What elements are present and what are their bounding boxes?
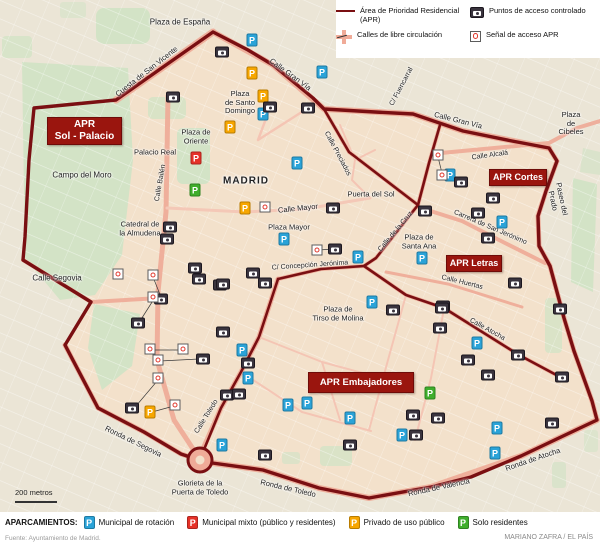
apr-signal-icon	[178, 344, 189, 355]
map-label: Plaza de Santa Ana	[402, 233, 437, 250]
apr-signal-icon	[148, 292, 159, 303]
parking-icon-blue: P	[367, 296, 378, 309]
camera-icon	[258, 278, 272, 289]
parking-icon-red: P	[187, 516, 198, 529]
parking-icon-orange: P	[225, 121, 236, 134]
camera-icon	[511, 350, 525, 361]
map-label: Campo del Moro	[52, 170, 111, 179]
parking-legend-label: Solo residentes	[473, 518, 528, 527]
camera-icon	[215, 47, 229, 58]
parking-icon-red: P	[191, 152, 202, 165]
legend-signal: Señal de acceso APR	[470, 30, 600, 44]
map-label: C/ Fuencarral	[388, 66, 415, 107]
map-label: Calle Segovia	[32, 273, 81, 282]
map-overlay-layer: Plaza de EspañaCuesta de San VicentePlaz…	[0, 0, 600, 512]
map-label: Plaza de Tirso de Molina	[313, 305, 364, 322]
parking-icon-green: P	[458, 516, 469, 529]
camera-icon	[481, 370, 495, 381]
camera-icon	[470, 7, 484, 18]
camera-icon	[166, 92, 180, 103]
camera-icon	[192, 274, 206, 285]
parking-icon-blue: P	[302, 397, 313, 410]
parking-icon-blue: P	[279, 233, 290, 246]
apr-signal-icon	[437, 170, 448, 181]
map-label: Ronda de Segovia	[103, 425, 162, 460]
parking-legend-label: Municipal de rotación	[99, 518, 175, 527]
map-label: Plaza de Cibeles	[557, 111, 586, 137]
camera-icon	[481, 233, 495, 244]
parking-legend-item: PMunicipal mixto (público y residentes)	[187, 516, 335, 529]
camera-icon	[435, 303, 449, 314]
camera-icon	[188, 263, 202, 274]
map-label: Calle Mayor	[278, 203, 319, 216]
map-label: C/ Concepción Jerónima	[271, 259, 348, 272]
apr-signal-icon	[113, 269, 124, 280]
camera-icon	[454, 177, 468, 188]
camera-icon	[131, 318, 145, 329]
apr-signal-icon	[153, 355, 164, 366]
apr-zone-label: APR Cortes	[489, 169, 547, 186]
map-label: Ronda de Toledo	[259, 478, 316, 499]
map-label: Ronda de Valencia	[407, 477, 470, 498]
camera-icon	[232, 389, 246, 400]
map-scale: 200 metros	[15, 488, 57, 503]
parking-icon-blue: P	[353, 251, 364, 264]
parking-legend-title: APARCAMIENTOS:	[5, 518, 78, 527]
camera-icon	[326, 203, 340, 214]
legend-signal-label: Señal de acceso APR	[486, 30, 559, 39]
parking-icon-blue: P	[472, 337, 483, 350]
camera-icon	[258, 450, 272, 461]
apr-signal-icon	[145, 344, 156, 355]
map-legend: Área de Prioridad Residencial (APR) Punt…	[336, 0, 600, 58]
camera-icon	[508, 278, 522, 289]
camera-icon	[418, 206, 432, 217]
parking-icon-green: P	[425, 387, 436, 400]
map-label: Catedral de la Almudena	[119, 220, 160, 237]
camera-icon	[433, 323, 447, 334]
parking-icon-blue: P	[317, 66, 328, 79]
camera-icon	[406, 410, 420, 421]
apr-line-swatch	[336, 10, 355, 12]
apr-signal-icon	[433, 150, 444, 161]
apr-zone-label: APR Sol - Palacio	[47, 117, 122, 145]
camera-icon	[328, 244, 342, 255]
map-label: Calle de la Cruz	[377, 210, 415, 253]
parking-icon-orange: P	[240, 202, 251, 215]
camera-icon	[216, 279, 230, 290]
map-label: Plaza de España	[150, 17, 211, 26]
footer: APARCAMIENTOS: PMunicipal de rotaciónPMu…	[0, 512, 600, 547]
parking-legend-label: Privado de uso público	[364, 518, 445, 527]
map-label: Glorieta de la Puerta de Toledo	[172, 479, 229, 496]
scale-bar	[15, 498, 57, 503]
parking-icon-blue: P	[247, 34, 258, 47]
camera-icon	[461, 355, 475, 366]
parking-icon-blue: P	[292, 157, 303, 170]
map-label: Plaza de Oriente	[181, 128, 210, 145]
camera-icon	[196, 354, 210, 365]
apr-signal-icon	[148, 270, 159, 281]
camera-icon	[486, 193, 500, 204]
map-label: Calle Bailén	[154, 164, 168, 202]
parking-icon-blue: P	[345, 412, 356, 425]
parking-icon-blue: P	[397, 429, 408, 442]
credit: MARIANO ZAFRA / EL PAÍS	[504, 534, 593, 541]
parking-icon-blue: P	[490, 447, 501, 460]
camera-icon	[545, 418, 559, 429]
camera-icon	[301, 103, 315, 114]
camera-icon	[216, 327, 230, 338]
source-note: Fuente: Ayuntamiento de Madrid.	[5, 535, 101, 542]
apr-zone-label: APR Letras	[446, 255, 502, 272]
legend-free-street-label: Calles de libre circulación	[357, 30, 442, 39]
camera-icon	[263, 102, 277, 113]
map-label: Calle Gran Vía	[268, 57, 313, 93]
parking-icon-green: P	[190, 184, 201, 197]
parking-icon-blue: P	[497, 216, 508, 229]
map-label: Calle Preciados	[322, 130, 352, 177]
map-label: Calle Alcalá	[471, 149, 508, 162]
apr-signal-icon	[312, 245, 323, 256]
parking-icon-blue: P	[84, 516, 95, 529]
parking-legend-item: PSolo residentes	[458, 516, 528, 529]
parking-legend-label: Municipal mixto (público y residentes)	[202, 518, 335, 527]
camera-icon	[409, 430, 423, 441]
map-label: Calle Gran Vía	[433, 111, 483, 131]
apr-signal-icon	[170, 400, 181, 411]
map-label: Ronda de Atocha	[504, 447, 561, 474]
camera-icon	[343, 440, 357, 451]
parking-icon-blue: P	[283, 399, 294, 412]
camera-icon	[553, 304, 567, 315]
parking-legend: APARCAMIENTOS: PMunicipal de rotaciónPMu…	[5, 516, 541, 529]
parking-icon-blue: P	[237, 344, 248, 357]
map-label: Puerta del Sol	[347, 191, 394, 200]
camera-icon	[471, 208, 485, 219]
parking-icon-blue: P	[243, 372, 254, 385]
map-label: Plaza de Santo Domingo	[225, 90, 255, 116]
apr-signal-icon	[260, 202, 271, 213]
map-label: Calle Huertas	[440, 274, 483, 292]
legend-apr-line-label: Área de Prioridad Residencial (APR)	[360, 6, 470, 25]
scale-label: 200 metros	[15, 488, 57, 497]
map-label: MADRID	[223, 175, 269, 187]
camera-icon	[125, 403, 139, 414]
map-label: Plaza Mayor	[268, 224, 310, 233]
legend-apr-line: Área de Prioridad Residencial (APR)	[336, 6, 470, 25]
parking-icon-blue: P	[217, 439, 228, 452]
free-street-swatch	[336, 30, 352, 44]
legend-camera: Puntos de acceso controlado	[470, 6, 600, 25]
parking-icon-orange: P	[145, 406, 156, 419]
legend-free-street: Calles de libre circulación	[336, 30, 470, 44]
madrid-apr-map: Plaza de EspañaCuesta de San VicentePlaz…	[0, 0, 600, 547]
camera-icon	[160, 234, 174, 245]
parking-icon-blue: P	[417, 252, 428, 265]
camera-icon	[163, 222, 177, 233]
map-label: Paseo del Prado	[544, 177, 570, 223]
map-label: Palacio Real	[134, 149, 176, 158]
map-label: Calle Toledo	[193, 399, 220, 436]
legend-camera-label: Puntos de acceso controlado	[489, 6, 586, 15]
camera-icon	[555, 372, 569, 383]
parking-icon-blue: P	[492, 422, 503, 435]
parking-legend-item: PPrivado de uso público	[349, 516, 445, 529]
street-tick	[337, 35, 347, 38]
apr-signal-icon	[470, 31, 481, 42]
camera-icon	[241, 358, 255, 369]
parking-legend-item: PMunicipal de rotación	[84, 516, 175, 529]
apr-signal-icon	[153, 373, 164, 384]
parking-icon-orange: P	[247, 67, 258, 80]
apr-zone-label: APR Embajadores	[308, 372, 414, 393]
camera-icon	[386, 305, 400, 316]
parking-icon-orange: P	[349, 516, 360, 529]
camera-icon	[431, 413, 445, 424]
